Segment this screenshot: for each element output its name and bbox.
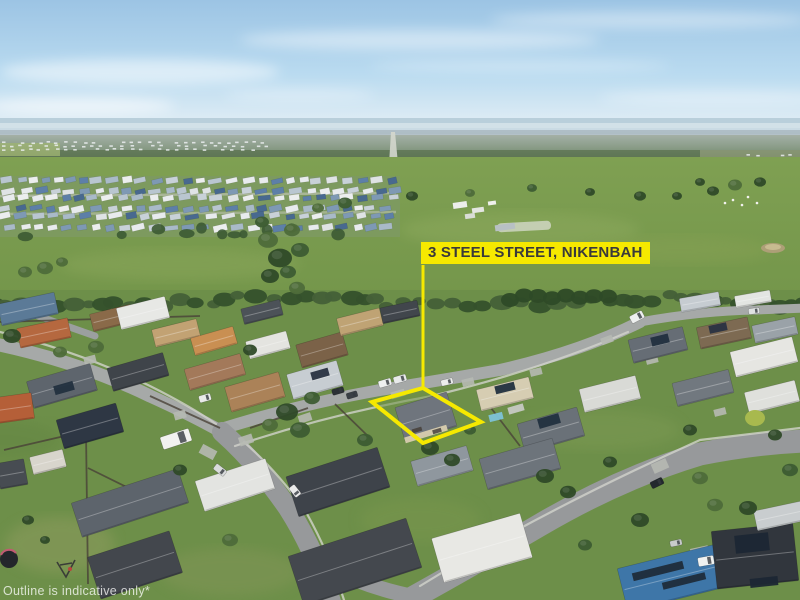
tree-highlight	[90, 342, 97, 348]
lime-tree	[745, 410, 765, 426]
hedge-tall-tree	[599, 289, 617, 303]
estate-roof-rect	[34, 224, 43, 230]
estate-roof-rect	[136, 205, 145, 212]
tree-highlight	[175, 466, 181, 471]
estate-roof	[303, 205, 314, 213]
estate-roof-rect	[79, 188, 90, 195]
tree-highlight	[784, 465, 791, 471]
estate-tree	[179, 229, 195, 238]
estate-roof-rect	[308, 224, 319, 230]
estate-roof-rect	[197, 193, 207, 201]
estate-roof-rect	[119, 225, 130, 232]
tree-highlight	[408, 192, 413, 196]
tree-highlight	[24, 516, 29, 520]
estate-roof-rect	[109, 187, 120, 195]
estate-roof-rect	[389, 194, 399, 200]
estate-roof	[289, 194, 300, 201]
hedge-tree	[366, 293, 384, 304]
estate-roof-rect	[378, 223, 392, 231]
estate-roof-rect	[96, 213, 107, 220]
tree-highlight	[587, 189, 592, 193]
estate-roof-rect	[259, 177, 268, 184]
tree-highlight	[340, 199, 346, 204]
estate-roof-rect	[300, 176, 310, 182]
estate-roof	[196, 178, 205, 184]
estate-roof-rect	[28, 176, 38, 183]
tree-highlight	[770, 431, 776, 436]
estate-roof	[389, 194, 399, 200]
property-address-label: 3 STEEL STREET, NIKENBAH	[421, 242, 650, 264]
hedge-tree	[325, 291, 342, 301]
estate-roof	[18, 177, 27, 183]
estate-roof-rect	[150, 194, 159, 201]
tree-highlight	[694, 473, 701, 479]
tree-highlight	[6, 331, 14, 337]
hedge-tree	[642, 296, 661, 308]
estate-roof	[307, 188, 316, 194]
estate-roof	[32, 212, 45, 219]
estate-roof	[241, 186, 252, 194]
estate-roof	[342, 177, 353, 184]
hedge-tree	[444, 298, 461, 309]
estate-tree	[331, 229, 345, 241]
estate-roof	[92, 223, 101, 230]
estate-roof	[108, 205, 118, 212]
estate-roof-rect	[303, 196, 312, 202]
sky	[0, 0, 800, 136]
estate-roof	[378, 223, 392, 231]
tree-highlight	[685, 426, 691, 431]
estate-roof	[205, 213, 217, 219]
hedge-tree	[63, 298, 85, 312]
hedge-tree	[427, 298, 445, 309]
estate-roof	[136, 205, 145, 212]
tree-highlight	[257, 218, 263, 223]
tree-highlight	[636, 192, 641, 196]
estate-roof	[300, 176, 310, 182]
tree-highlight	[756, 178, 761, 182]
estate-roof-rect	[77, 224, 87, 231]
estate-roof	[259, 177, 268, 184]
estate-roof-rect	[92, 223, 101, 230]
estate-roof-rect	[316, 194, 326, 200]
cattle-dot	[724, 202, 727, 205]
estate-roof	[77, 224, 87, 231]
tree-highlight	[446, 455, 453, 461]
tree-highlight	[42, 537, 47, 541]
house	[0, 459, 28, 489]
cattle-dot	[732, 199, 735, 202]
estate-roof	[183, 178, 193, 185]
cattle-dot	[756, 202, 759, 205]
hedge-tree	[230, 291, 244, 300]
house	[0, 393, 35, 424]
tree-highlight	[58, 258, 63, 262]
estate-roof	[79, 177, 88, 184]
estate-roof	[119, 225, 130, 232]
estate-roof	[245, 204, 254, 212]
tree-highlight	[20, 268, 26, 273]
aerial-scene	[0, 0, 800, 600]
tree-highlight	[709, 500, 716, 506]
estate-roof-rect	[357, 195, 367, 202]
tree-highlight	[580, 541, 586, 546]
tree-highlight	[709, 187, 714, 191]
tree-highlight	[730, 181, 736, 186]
tree-highlight	[674, 193, 679, 197]
estate-roof	[240, 212, 250, 219]
estate-roof-rect	[18, 177, 27, 183]
estate-roof-rect	[303, 205, 314, 213]
estate-roof	[34, 224, 43, 230]
tree-highlight	[264, 420, 271, 426]
estate-roof	[166, 187, 175, 194]
estate-roof	[354, 205, 363, 211]
estate-roof	[303, 196, 312, 202]
distant-housing-estate	[0, 176, 402, 242]
estate-roof-rect	[307, 188, 316, 194]
tree-highlight	[282, 267, 289, 273]
vehicle	[748, 307, 760, 314]
tree-highlight	[291, 283, 298, 289]
tree-highlight	[55, 348, 61, 353]
estate-roof	[197, 193, 207, 201]
estate-roof	[79, 188, 90, 195]
tree-highlight	[314, 204, 319, 208]
estate-roof-rect	[342, 177, 353, 184]
tree-highlight	[529, 185, 534, 189]
tree-highlight	[245, 346, 251, 351]
estate-roof	[357, 195, 367, 202]
estate-roof-rect	[241, 186, 252, 194]
hedge-tree	[473, 300, 491, 311]
tree-highlight	[306, 393, 313, 399]
tree-highlight	[359, 435, 366, 441]
tree-highlight	[467, 190, 472, 194]
estate-roof-rect	[240, 212, 250, 219]
estate-roof-rect	[54, 177, 64, 183]
estate-tree	[196, 222, 207, 233]
tree-highlight	[279, 405, 289, 413]
tree-highlight	[605, 458, 611, 463]
estate-tree	[117, 231, 127, 239]
estate-roof	[96, 213, 107, 220]
estate-roof	[122, 176, 133, 184]
estate-roof	[316, 194, 326, 200]
estate-roof-rect	[196, 178, 205, 184]
tree-highlight	[264, 271, 272, 277]
tree-highlight	[261, 234, 270, 241]
estate-roof	[310, 177, 321, 184]
disclaimer-watermark: Outline is indicative only*	[3, 584, 150, 598]
estate-roof-rect	[245, 204, 254, 212]
estate-roof	[150, 194, 159, 201]
tree-highlight	[634, 515, 642, 521]
tree-highlight	[286, 225, 293, 231]
tree-highlight	[294, 245, 302, 251]
estate-tree	[239, 230, 247, 238]
estate-roof-rect	[354, 205, 363, 211]
hedge-tree	[244, 289, 267, 303]
estate-roof-rect	[32, 212, 45, 219]
estate-roof-rect	[310, 177, 321, 184]
estate-roof-rect	[122, 176, 133, 184]
estate-roof-rect	[289, 194, 300, 201]
aerial-photo: 3 STEEL STREET, NIKENBAH Outline is indi…	[0, 0, 800, 600]
estate-roof	[54, 177, 64, 183]
house-detail	[734, 532, 770, 553]
estate-roof	[28, 176, 38, 183]
estate-roof-rect	[166, 187, 175, 194]
estate-roof-rect	[205, 213, 217, 219]
cattle-dot	[747, 196, 750, 199]
tree-highlight	[697, 179, 702, 183]
estate-tree	[217, 229, 227, 239]
cattle-dot	[741, 204, 744, 207]
tree-highlight	[742, 503, 750, 509]
estate-tree	[18, 232, 33, 241]
estate-roof-rect	[108, 205, 118, 212]
tree-highlight	[39, 263, 46, 269]
estate-roof	[308, 224, 319, 230]
vehicle-body	[748, 307, 760, 314]
estate-roof-rect	[79, 177, 88, 184]
hedge-tree	[719, 297, 731, 305]
estate-roof-rect	[183, 178, 193, 185]
tree-highlight	[272, 251, 283, 259]
tree-highlight	[224, 535, 231, 541]
tree-highlight	[562, 487, 569, 493]
tree-highlight	[293, 424, 302, 431]
estate-tree	[152, 224, 166, 234]
hedge-tree	[187, 298, 204, 309]
tree-highlight	[539, 471, 547, 477]
estate-roof	[109, 187, 120, 195]
